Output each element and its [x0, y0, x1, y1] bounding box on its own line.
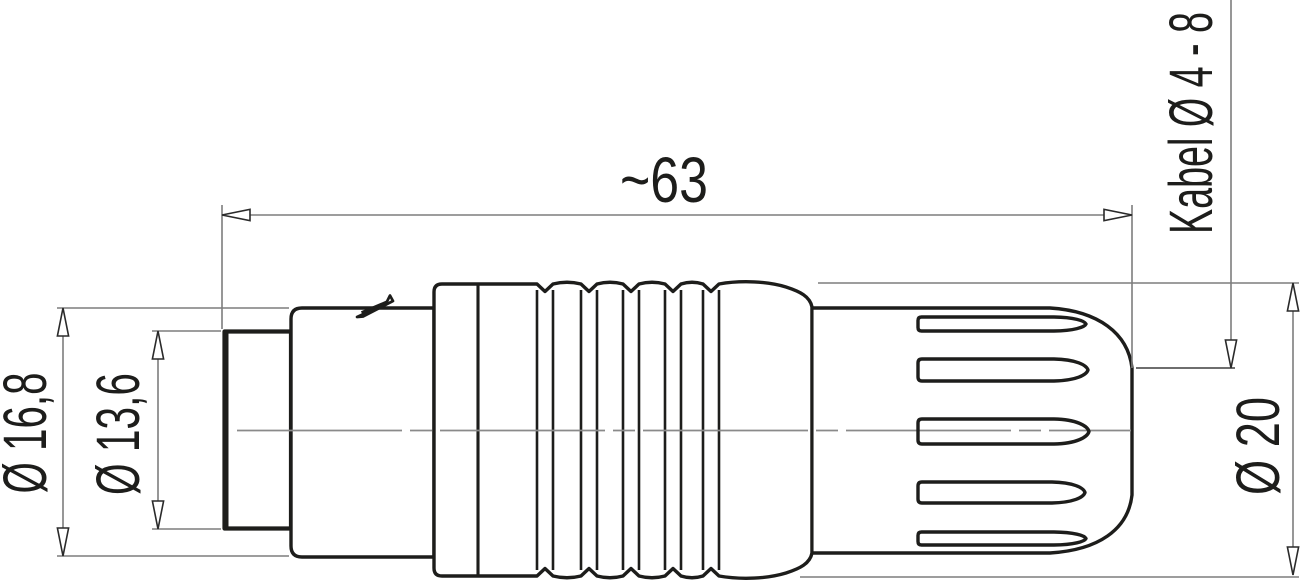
cable-diameter-label: Kabel Ø 4 - 8 — [1157, 12, 1225, 234]
front-diameter-label: Ø 13,6 — [84, 373, 152, 495]
connector-dimension-drawing: ~63 Ø 16,8 Ø 13,6 Kabel Ø 4 - 8 Ø 20 — [0, 0, 1300, 580]
arrowhead-left — [222, 209, 250, 220]
arrowhead-down — [1287, 547, 1298, 575]
arrowhead-up — [1287, 283, 1298, 311]
arrowhead-down — [1225, 340, 1236, 368]
arrowhead-up — [152, 331, 163, 359]
arrowhead-down — [57, 528, 68, 556]
arrowhead-up — [57, 308, 68, 336]
overall-length-label: ~63 — [620, 144, 708, 216]
connector-body — [225, 282, 1133, 579]
main-barrel — [291, 308, 434, 557]
technical-drawing-page: ~63 Ø 16,8 Ø 13,6 Kabel Ø 4 - 8 Ø 20 — [0, 0, 1300, 580]
grip-diameter-label: Ø 20 — [1224, 397, 1292, 495]
arrowhead-right — [1104, 209, 1132, 220]
body-diameter-label: Ø 16,8 — [0, 373, 59, 494]
arrowhead-down — [152, 501, 163, 529]
dimension-cable-diameter: Kabel Ø 4 - 8 — [1136, 0, 1237, 368]
dimension-front-diameter: Ø 13,6 — [84, 331, 221, 529]
